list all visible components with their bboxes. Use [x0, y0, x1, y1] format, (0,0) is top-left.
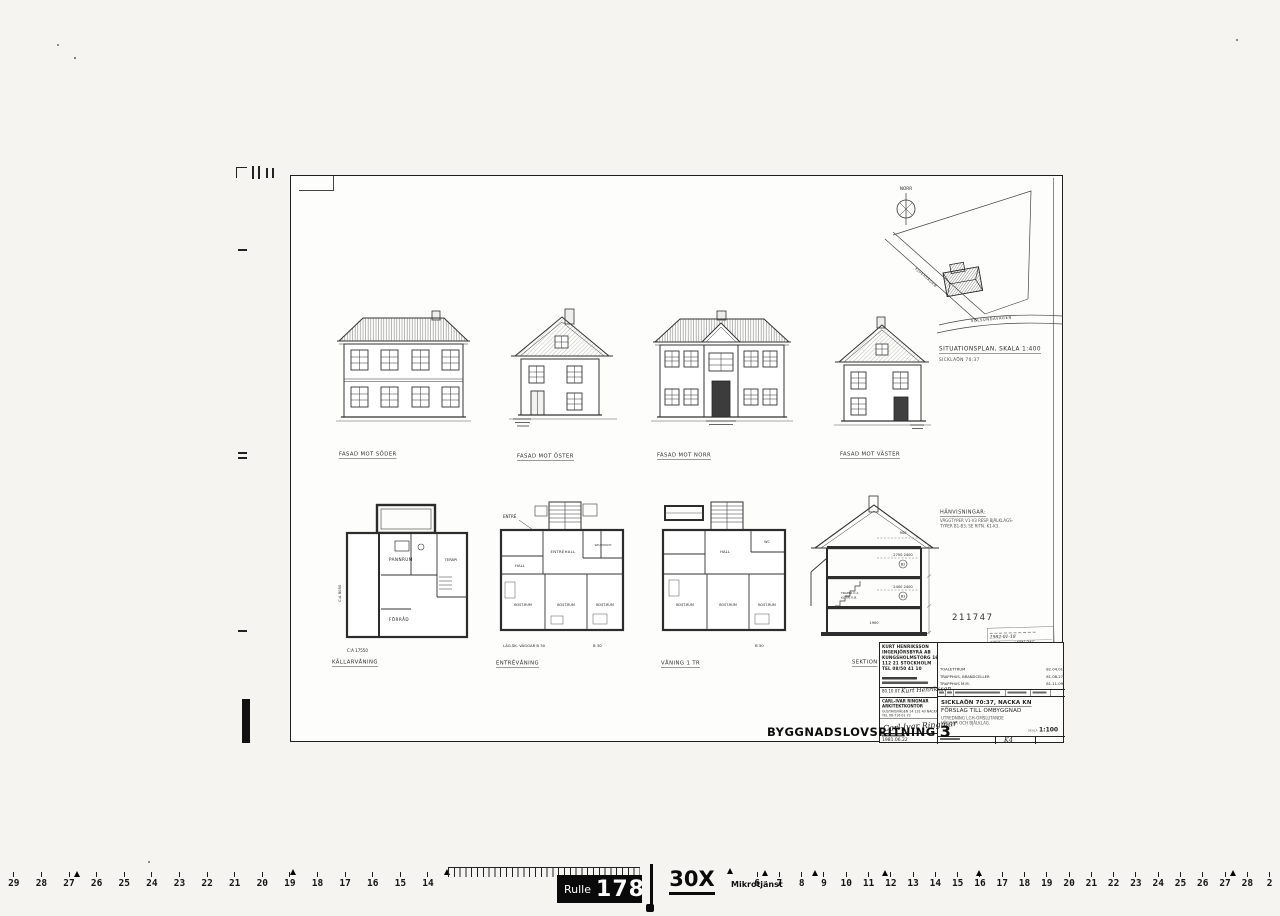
plan-floor1-label-wrap: VÅNING 1 TR: [661, 657, 700, 668]
index-marker-triangle: [812, 870, 818, 876]
registration-mark: [272, 168, 274, 178]
titleblock-line: [995, 736, 996, 744]
room-label-wc: WC: [764, 540, 770, 544]
film-ruler-left: 29 28 27 26 25 24: [0, 872, 442, 889]
film-frame-mark: [650, 864, 653, 906]
facade-east-label-wrap: FASAD MOT ÖSTER: [517, 450, 574, 461]
film-roll-badge: Rulle 178: [557, 875, 642, 903]
siteplan-caption: SITUATIONSPLAN, SKALA 1:400 SICKLAÖN 70:…: [939, 343, 1041, 363]
facade-south-label: FASAD MOT SÖDER: [339, 451, 397, 459]
index-marker-triangle: [727, 868, 733, 874]
revision-date: 81.08.27: [1046, 673, 1063, 680]
ruler-tick: [757, 872, 758, 877]
facade-north-label: FASAD MOT NORR: [657, 452, 711, 460]
film-frame-dot: [646, 904, 654, 912]
drawing-type-caption: BYGGNADSLOVSRITNING 3: [767, 725, 951, 739]
ruler-tick: [913, 872, 914, 877]
scan-speck: [74, 57, 76, 59]
dim-left: C:A 8050: [337, 584, 342, 602]
ruler-tick: [823, 872, 824, 877]
titleblock-line: [1050, 689, 1051, 696]
illegible-text-smudge: [882, 677, 917, 680]
facade-south-drawing: [336, 311, 471, 435]
ruler-tick: [124, 872, 125, 877]
ruler-tick: [1135, 872, 1136, 877]
ruler-tick: [1002, 872, 1003, 877]
registration-mark: [258, 166, 260, 179]
plan-note: B 30: [755, 643, 764, 648]
project-subtitle: FÖRSLAG TILL OMBYGGNAD: [941, 707, 1021, 714]
magnification-badge: 30X: [664, 869, 720, 895]
ruler-tick: [400, 872, 401, 877]
scan-speck: [57, 44, 59, 46]
illegible-text-smudge: [947, 692, 952, 694]
ruler-tick: [13, 872, 14, 877]
index-marker-triangle: [1230, 870, 1236, 876]
plan-floor1-drawing: WC HALL BOST.RUM BOST.RUM BOST.RUM B 30: [651, 496, 799, 654]
plan-note-right: B 30: [593, 643, 602, 648]
titleblock-line: [937, 689, 1065, 690]
drawing-number: K4: [1004, 737, 1013, 745]
margin-dash: [238, 452, 247, 454]
ruler-tick: [1247, 872, 1248, 877]
ruler-tick: [207, 872, 208, 877]
index-marker-triangle: [882, 870, 888, 876]
film-ruler-number: 23: [166, 872, 194, 889]
revision-text: TRAPPHUS, BRANDCELLER: [940, 673, 1046, 680]
room-label-wc-dusch: WC/DUSCH: [595, 543, 612, 547]
film-ruler-number: 22: [1103, 872, 1125, 889]
film-ruler-number: 18: [304, 872, 332, 889]
film-ruler-number: 17: [331, 872, 359, 889]
magnification-value: 30X: [664, 869, 720, 890]
room-label-forrad: FÖRRÅD: [389, 617, 409, 622]
room-label-bostrum: BOST.RUM: [557, 603, 575, 607]
architect-phone: TEL 08-716 01 72: [882, 714, 911, 718]
facade-east-drawing: [509, 309, 617, 435]
room-label-entrehall: ENTRÉHALL: [551, 549, 577, 554]
dim-upper: 2700 2400: [893, 553, 913, 557]
ruler-tick: [1024, 872, 1025, 877]
project-desc-1: UTREDNING LGH-OMSLUTANDE: [941, 716, 1004, 721]
film-ruler-number: 24: [138, 872, 166, 889]
ruler-tick: [345, 872, 346, 877]
ruler-tick: [41, 872, 42, 877]
ruler-tick: [262, 872, 263, 877]
project-title: SICKLAÖN 70:37, NACKA KN: [941, 699, 1032, 707]
drawing-sheet: FASAD MOT SÖDER FASAD MOT ÖSTER FASAD MO…: [290, 175, 1063, 742]
plan-basement-drawing: PANNRUM TERAPI FÖRRÅD C:A 17550 C:A 8050: [337, 497, 479, 657]
film-ruler-number: 22: [193, 872, 221, 889]
ruler-tick: [234, 872, 235, 877]
film-ruler-number: 24: [1147, 872, 1169, 889]
scale-value: 1:100: [1039, 726, 1058, 733]
titleblock-line: [1030, 689, 1031, 696]
margin-dash: [238, 249, 247, 251]
film-ruler-number: 14: [924, 872, 946, 889]
north-compass-icon: NORR: [897, 186, 915, 225]
room-label-bostrum: BOST.RUM: [596, 603, 614, 607]
revision-date: 82.04.01: [1046, 666, 1063, 673]
film-roll-number: 178: [596, 877, 645, 902]
titleblock-line: [953, 689, 954, 696]
film-ruler-number: 15: [387, 872, 415, 889]
room-label-hall: HALL: [515, 563, 526, 568]
film-ruler-number: 20: [1058, 872, 1080, 889]
film-ruler-number: 20: [248, 872, 276, 889]
film-ruler-number: 25: [1169, 872, 1191, 889]
room-label-hall: HALL: [720, 549, 731, 554]
index-marker-triangle: [290, 869, 296, 875]
film-ruler-number: 13: [902, 872, 924, 889]
revision-row: TRAPPHUS, BRANDCELLER 81.08.27: [940, 673, 1063, 680]
ruler-tick: [151, 872, 152, 877]
film-ruler-number: 28: [1236, 872, 1258, 889]
ruler-tick: [1046, 872, 1047, 877]
ruler-tick: [1269, 872, 1270, 877]
marker-b3: B3: [901, 595, 905, 599]
ruler-tick: [317, 872, 318, 877]
illegible-text-smudge: [939, 692, 944, 694]
film-ruler-number: 17: [991, 872, 1013, 889]
revision-row: TOALETTRUM 82.04.01: [940, 666, 1063, 673]
film-ruler-number: 10: [835, 872, 857, 889]
titleblock-line: [1035, 736, 1036, 744]
titleblock-line: [937, 696, 1065, 697]
plan-entry-label-wrap: ENTRÉVÅNING: [496, 657, 539, 668]
ruler-tick: [1158, 872, 1159, 877]
ruler-tick: [890, 872, 891, 877]
margin-dash: [238, 630, 247, 632]
section-drawing: 900 2700 2400 B2 2400 2400 B3 1900 TRAPP…: [807, 494, 944, 646]
film-ruler-number: 26: [83, 872, 111, 889]
siteplan-building-footprint: [942, 260, 983, 297]
index-marker-triangle: [762, 870, 768, 876]
facade-south-label-wrap: FASAD MOT SÖDER: [339, 448, 397, 459]
sheet-notch: [299, 176, 334, 191]
architect-name: CARL-IVAR RINGMAR ARKITEKTKONTOR: [882, 699, 935, 709]
room-label-bostrum: BOST.RUM: [719, 603, 737, 607]
film-ruler-number: 21: [221, 872, 249, 889]
references-note: HÄNVISNINGAR: VÄGGTYPER V1-V3 RESP BJÄLK…: [940, 506, 1013, 529]
film-ruler-number: 11: [857, 872, 879, 889]
margin-bar: [242, 699, 250, 743]
room-label-bostrum: BOST.RUM: [514, 603, 532, 607]
engineer-address-block: KURT HENRIKSSONINGENJÖRSBYRÅ ABKUNGSHOLM…: [882, 645, 938, 673]
room-label-bostrum: BOST.RUM: [758, 603, 776, 607]
scale-label: SKALA: [1028, 729, 1038, 733]
north-label: NORR: [900, 186, 912, 191]
ruler-tick: [1180, 872, 1181, 877]
siteplan-drawing: NORR EJDERVÄGEN SOLSUNDAVÄGEN: [879, 181, 1065, 346]
scan-speck: [1236, 39, 1238, 41]
film-ruler-number: 21: [1080, 872, 1102, 889]
room-label-terapi: TERAPI: [444, 558, 458, 562]
ruler-tick: [372, 872, 373, 877]
film-ruler-number: 8: [791, 872, 813, 889]
ruler-tick: [179, 872, 180, 877]
siteplan-subtitle: SICKLAÖN 70:37: [939, 358, 980, 363]
ruler-tick: [427, 872, 428, 877]
film-roll-label: Rulle: [564, 883, 591, 896]
ruler-tick: [1225, 872, 1226, 877]
film-ruler-number: 23: [1125, 872, 1147, 889]
titleblock-line: [880, 697, 937, 698]
film-ruler-number: 14: [414, 872, 442, 889]
dim-attic: 900: [900, 531, 908, 535]
drawing-sheet-number: 3: [940, 725, 951, 739]
plan-entry-label: ENTRÉVÅNING: [496, 660, 539, 668]
ruler-tick: [846, 872, 847, 877]
illegible-text-smudge: [955, 692, 1000, 694]
revision-row: TRAPPHUS M.M. 81.11.09: [940, 681, 1063, 688]
registration-mark: [266, 168, 268, 178]
dim-bottom: C:A 17550: [347, 648, 368, 653]
margin-dash: [238, 457, 247, 459]
titleblock-line: [880, 718, 937, 719]
ruler-tick: [935, 872, 936, 877]
facade-east-label: FASAD MOT ÖSTER: [517, 453, 574, 461]
plan-entry-drawing: ENTRÉ ENTRÉHALL WC/DUSCH HALL BOST.RUM B…: [489, 496, 637, 654]
siteplan-title: SITUATIONSPLAN, SKALA 1:400: [939, 345, 1041, 354]
references-line-2: TYPER B1-B3, SE RITN. K1-K3.: [940, 524, 1013, 530]
references-heading: HÄNVISNINGAR:: [940, 510, 986, 517]
ruler-tick: [69, 872, 70, 877]
street-name-bottom: SOLSUNDAVÄGEN: [971, 314, 1012, 323]
registration-mark: [252, 166, 254, 179]
plan-basement-label-wrap: KÄLLARVÅNING: [332, 656, 378, 667]
film-ruler-number: 19: [1036, 872, 1058, 889]
film-ruler-number: 18: [1013, 872, 1035, 889]
film-ruler-number: 15: [947, 872, 969, 889]
plan-section-label: SEKTION: [852, 659, 878, 667]
film-ruler-number: 7: [768, 872, 790, 889]
facade-west-label: FASAD MOT VÄSTER: [840, 451, 900, 459]
film-ruler-number: 26: [1192, 872, 1214, 889]
room-label-entre: ENTRÉ: [503, 514, 517, 519]
plan-floor1-label: VÅNING 1 TR: [661, 660, 700, 668]
revision-text: TRAPPHUS M.M.: [940, 681, 1046, 688]
stair-note-1: TRAPPA C:A: [840, 591, 859, 595]
ruler-tick: [957, 872, 958, 877]
engineer-date: 80.10.07: [882, 689, 900, 694]
dim-basement: 1900: [869, 621, 879, 625]
film-ruler-number: 28: [28, 872, 56, 889]
ruler-tick: [1113, 872, 1114, 877]
revision-date: 81.11.09: [1046, 681, 1063, 688]
archive-stamp-number: 211747: [952, 613, 994, 623]
film-ruler-number: 29: [0, 872, 28, 889]
drawing-type-label: BYGGNADSLOVSRITNING: [767, 725, 936, 739]
film-ruler-right: 6 7 8 9 10 11: [746, 872, 1280, 889]
engineer-address-line: TEL 08/50 41 10: [882, 667, 938, 673]
facade-west-label-wrap: FASAD MOT VÄSTER: [840, 448, 900, 459]
film-ruler-number: 2: [1258, 872, 1280, 889]
index-marker-triangle: [976, 870, 982, 876]
magnification-underline: [669, 892, 715, 895]
registration-mark: [236, 167, 247, 178]
index-marker-triangle: [74, 871, 80, 877]
room-label-bostrum: BOST.RUM: [676, 603, 694, 607]
plan-basement-label: KÄLLARVÅNING: [332, 659, 378, 667]
dim-lower: 2400 2400: [893, 585, 913, 589]
revision-text: TOALETTRUM: [940, 666, 1046, 673]
ruler-tick: [96, 872, 97, 877]
ruler-tick: [1202, 872, 1203, 877]
illegible-text-smudge: [1008, 692, 1027, 694]
illegible-text-smudge: [1033, 692, 1047, 694]
ruler-tick: [868, 872, 869, 877]
stair-note-2: KL.FRI K.B.: [841, 596, 857, 600]
ruler-tick: [1091, 872, 1092, 877]
facade-north-label-wrap: FASAD MOT NORR: [657, 449, 711, 460]
room-label-pannrum: PANNRUM: [389, 557, 413, 562]
marker-b2: B2: [901, 563, 905, 567]
ruler-tick: [1069, 872, 1070, 877]
illegible-text-smudge: [882, 682, 928, 685]
microfilm-scan-page: FASAD MOT SÖDER FASAD MOT ÖSTER FASAD MO…: [0, 0, 1280, 916]
titleblock-line: [937, 736, 1065, 737]
film-ruler-number: 16: [359, 872, 387, 889]
scan-speck: [148, 861, 150, 863]
film-ruler-number: 25: [110, 872, 138, 889]
facade-north-drawing: [651, 311, 793, 435]
ruler-tick: [779, 872, 780, 877]
plan-note-left: LÄG.SK. VÄGGAR B 30: [503, 643, 546, 648]
ruler-tick: [801, 872, 802, 877]
revision-list: TOALETTRUM 82.04.01 TRAPPHUS, BRANDCELLE…: [940, 666, 1063, 688]
titleblock-line: [1005, 689, 1006, 696]
plan-section-label-wrap: SEKTION: [852, 656, 878, 667]
